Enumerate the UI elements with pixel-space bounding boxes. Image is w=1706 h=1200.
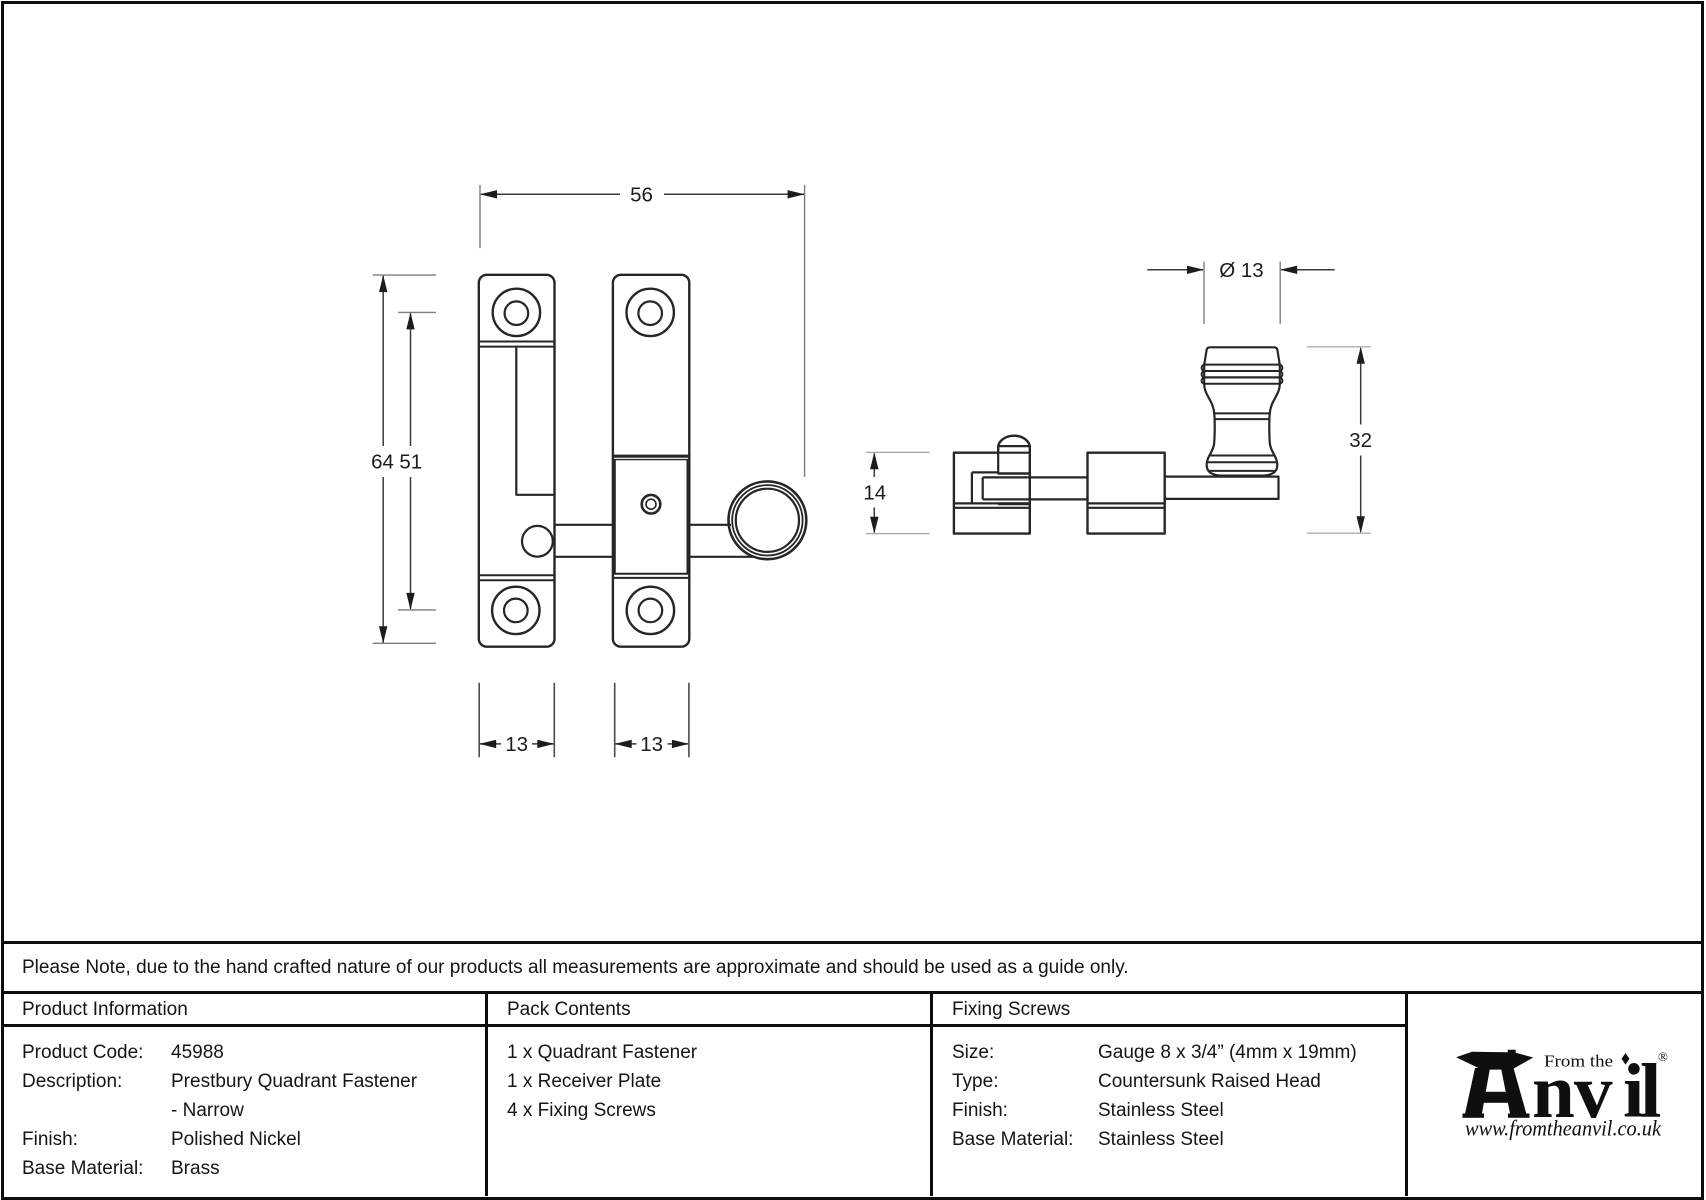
svg-text:14: 14 [863, 482, 886, 505]
svg-text:64: 64 [371, 451, 394, 474]
svg-text:Ø 13: Ø 13 [1219, 259, 1263, 282]
svg-text:www.fromtheanvil.co.uk: www.fromtheanvil.co.uk [1465, 1116, 1662, 1141]
svg-text:56: 56 [630, 184, 653, 207]
svg-text:13: 13 [505, 733, 528, 756]
svg-text:®: ® [1658, 1049, 1668, 1064]
svg-text:51: 51 [399, 451, 422, 474]
svg-text:32: 32 [1349, 429, 1372, 452]
svg-text:13: 13 [640, 733, 663, 756]
